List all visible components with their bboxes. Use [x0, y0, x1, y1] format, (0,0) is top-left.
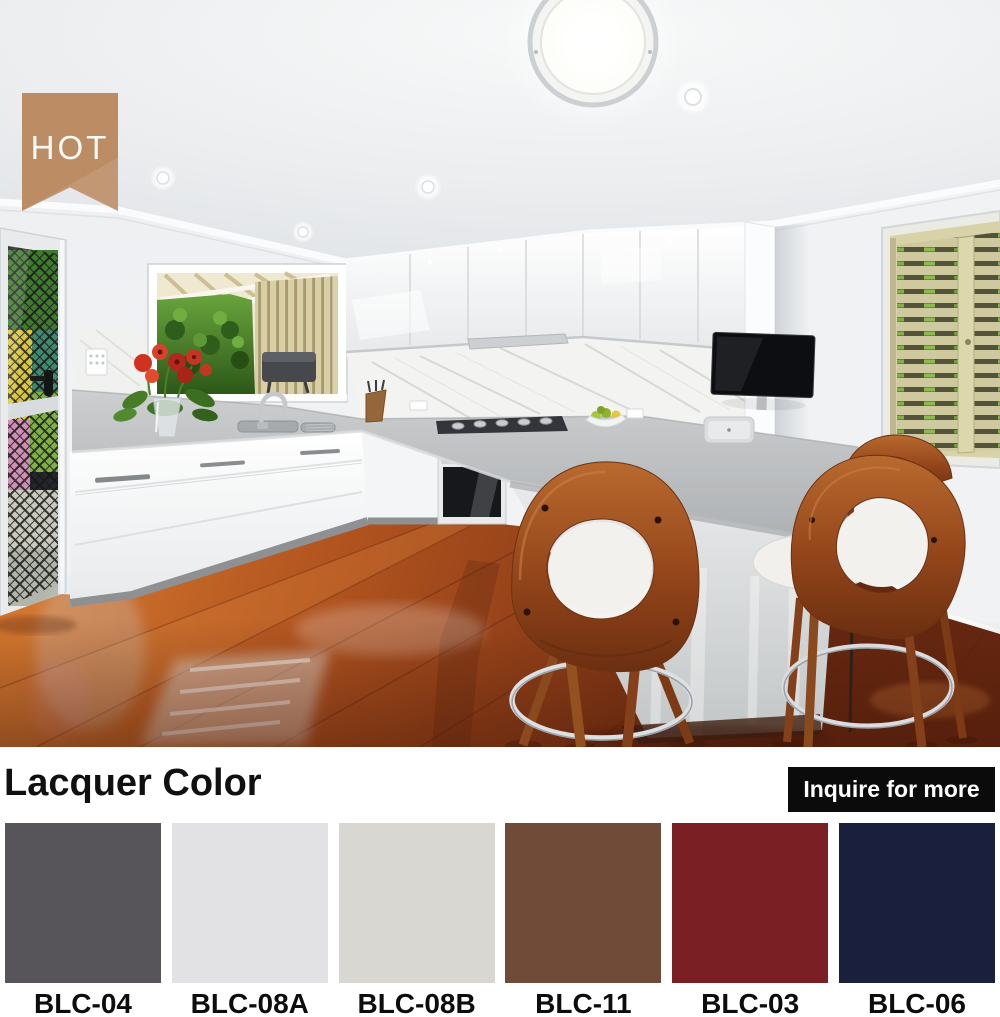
power-outlet — [410, 401, 427, 410]
color-swatch: BLC-08B — [339, 823, 495, 1017]
light-switch — [86, 349, 107, 375]
color-swatch: BLC-03 — [672, 823, 828, 1017]
swatch-chip — [339, 823, 495, 983]
swatch-row: BLC-04 BLC-08A BLC-08B BLC-11 BLC-03 BLC… — [4, 823, 996, 1017]
swatch-chip — [505, 823, 661, 983]
swatch-code: BLC-06 — [839, 988, 995, 1017]
swatch-code: BLC-08B — [339, 988, 495, 1017]
sink — [238, 421, 335, 432]
knife-block — [366, 380, 386, 422]
swatch-chip — [839, 823, 995, 983]
swatch-chip — [172, 823, 328, 983]
inquire-button[interactable]: Inquire for more — [788, 767, 995, 812]
color-swatch: BLC-08A — [172, 823, 328, 1017]
section-header: Lacquer Color Inquire for more — [4, 761, 996, 812]
swatch-code: BLC-03 — [672, 988, 828, 1017]
power-outlet — [627, 409, 643, 418]
color-swatch: BLC-06 — [839, 823, 995, 1017]
swatch-chip — [672, 823, 828, 983]
garden-greenery — [157, 294, 255, 394]
section-title: Lacquer Color — [4, 761, 262, 807]
security-door — [0, 228, 66, 618]
window-stile — [958, 236, 974, 453]
color-swatch: BLC-04 — [5, 823, 161, 1017]
swatch-code: BLC-11 — [505, 988, 661, 1017]
speaker-dock — [704, 417, 754, 443]
swatch-code: BLC-08A — [172, 988, 328, 1017]
swatch-chip — [5, 823, 161, 983]
garden-window — [148, 264, 347, 402]
lacquer-color-section: Lacquer Color Inquire for more BLC-04 BL… — [0, 747, 1000, 1017]
kitchen-photo — [0, 0, 1000, 747]
swatch-code: BLC-04 — [5, 988, 161, 1017]
product-image: HOT Lacquer Color Inquire for more BLC-0… — [0, 0, 1000, 1017]
color-swatch: BLC-11 — [505, 823, 661, 1017]
marble-splashback — [346, 337, 772, 430]
door-handle — [44, 370, 53, 396]
louvre-window — [882, 211, 1000, 468]
